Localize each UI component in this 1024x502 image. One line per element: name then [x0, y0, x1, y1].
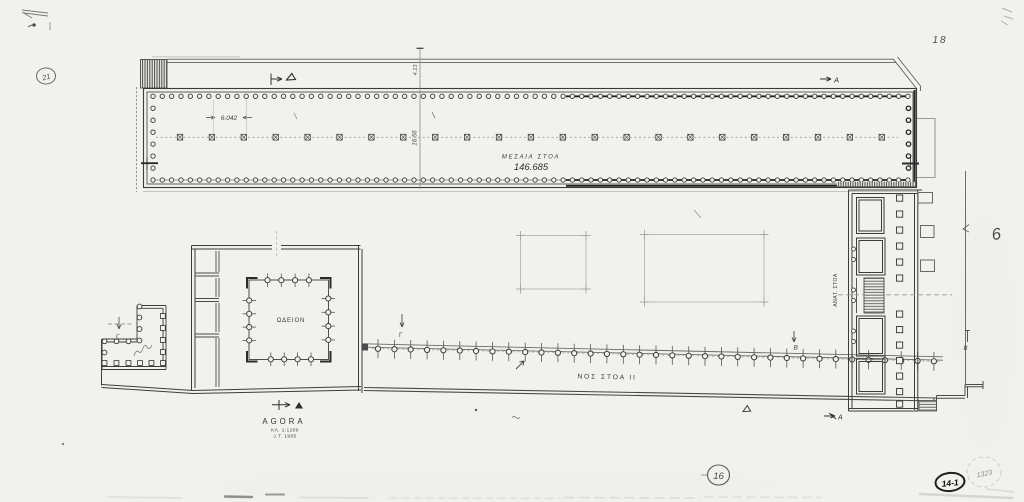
svg-text:Γ: Γ	[399, 332, 403, 339]
svg-text:AGORA: AGORA	[262, 417, 305, 426]
svg-text:B: B	[794, 345, 799, 352]
svg-text:6.042: 6.042	[221, 115, 238, 122]
svg-text:J.T. 1965: J.T. 1965	[273, 434, 296, 439]
svg-text:B: B	[964, 346, 968, 352]
svg-text:16.56: 16.56	[412, 130, 419, 146]
svg-text:14-1: 14-1	[941, 477, 959, 489]
svg-text:16: 16	[713, 471, 724, 482]
svg-text:ΩΔΕΙΟΝ: ΩΔΕΙΟΝ	[277, 318, 306, 324]
svg-text:Γ: Γ	[116, 334, 120, 341]
svg-text:18: 18	[932, 35, 947, 46]
svg-text:ΜΕΣΑΙΑ ΣΤΟΑ: ΜΕΣΑΙΑ ΣΤΟΑ	[502, 155, 560, 161]
svg-text:A: A	[837, 415, 843, 422]
svg-text:ΑΝΑΤ. ΣΤΟΑ: ΑΝΑΤ. ΣΤΟΑ	[833, 273, 839, 307]
svg-text:ΝΟΣ ΣΤΟΑ ΙΙ: ΝΟΣ ΣΤΟΑ ΙΙ	[577, 373, 636, 381]
svg-text:A: A	[833, 76, 839, 85]
svg-text:ΚΛ. 1:1200: ΚΛ. 1:1200	[271, 428, 299, 433]
svg-text:146.685: 146.685	[514, 162, 549, 173]
svg-text:4.13: 4.13	[413, 64, 419, 76]
